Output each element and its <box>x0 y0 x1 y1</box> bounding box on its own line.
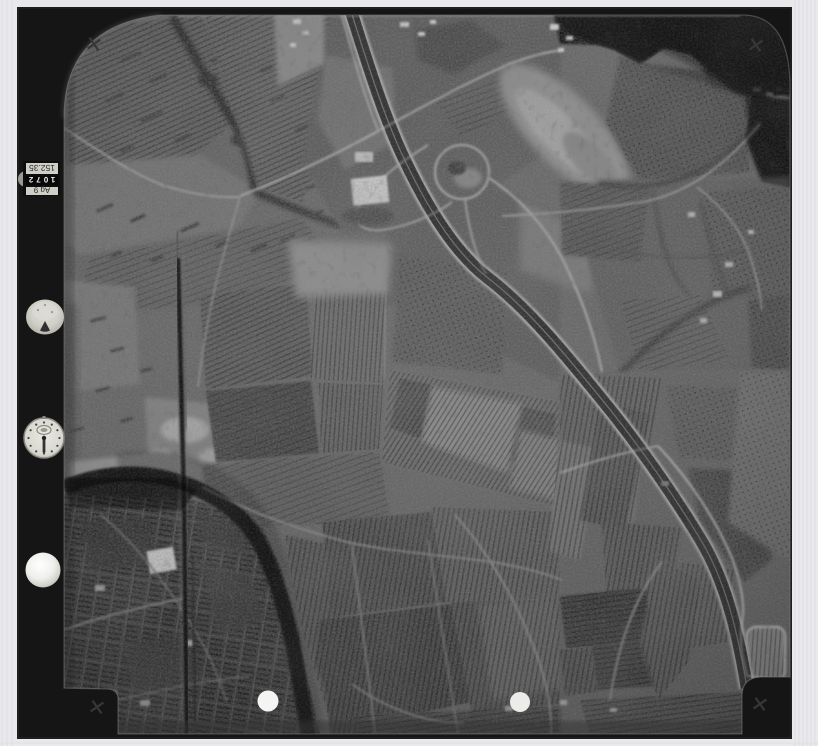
svg-text:152.35: 152.35 <box>29 163 55 173</box>
svg-text:2: 2 <box>28 175 33 184</box>
svg-text:1: 1 <box>50 175 55 184</box>
svg-text:7: 7 <box>36 175 41 184</box>
svg-text:Ag 9: Ag 9 <box>33 186 50 195</box>
svg-text:0: 0 <box>43 175 48 184</box>
